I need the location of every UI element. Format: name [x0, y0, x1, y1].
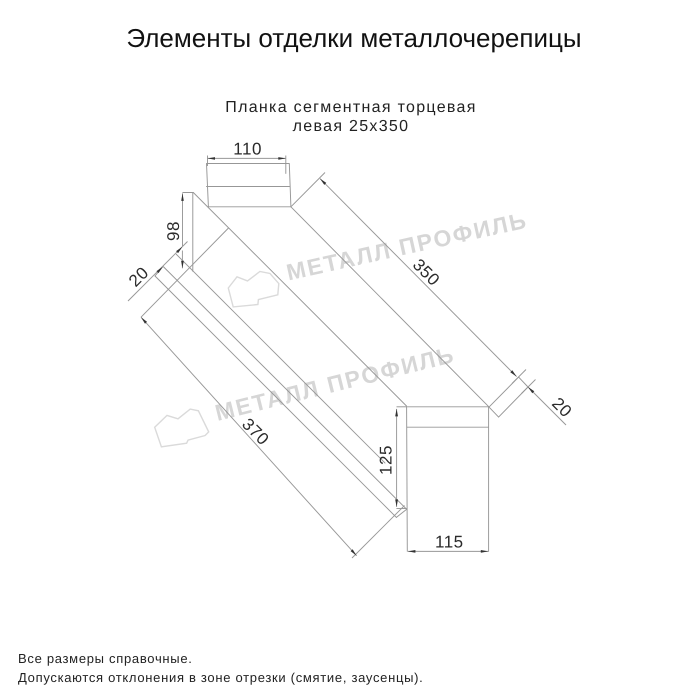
svg-text:Допускаются отклонения в зоне: Допускаются отклонения в зоне отрезки (с… [18, 670, 424, 685]
svg-text:левая 25x350: левая 25x350 [293, 118, 410, 135]
svg-text:Элементы отделки металлочерепи: Элементы отделки металлочерепицы [126, 23, 581, 53]
svg-text:110: 110 [233, 140, 262, 159]
svg-text:98: 98 [164, 221, 183, 241]
svg-text:Все размеры справочные.: Все размеры справочные. [18, 651, 193, 666]
svg-text:Планка сегментная торцевая: Планка сегментная торцевая [225, 99, 476, 116]
svg-text:115: 115 [435, 532, 464, 551]
svg-text:125: 125 [377, 445, 396, 475]
